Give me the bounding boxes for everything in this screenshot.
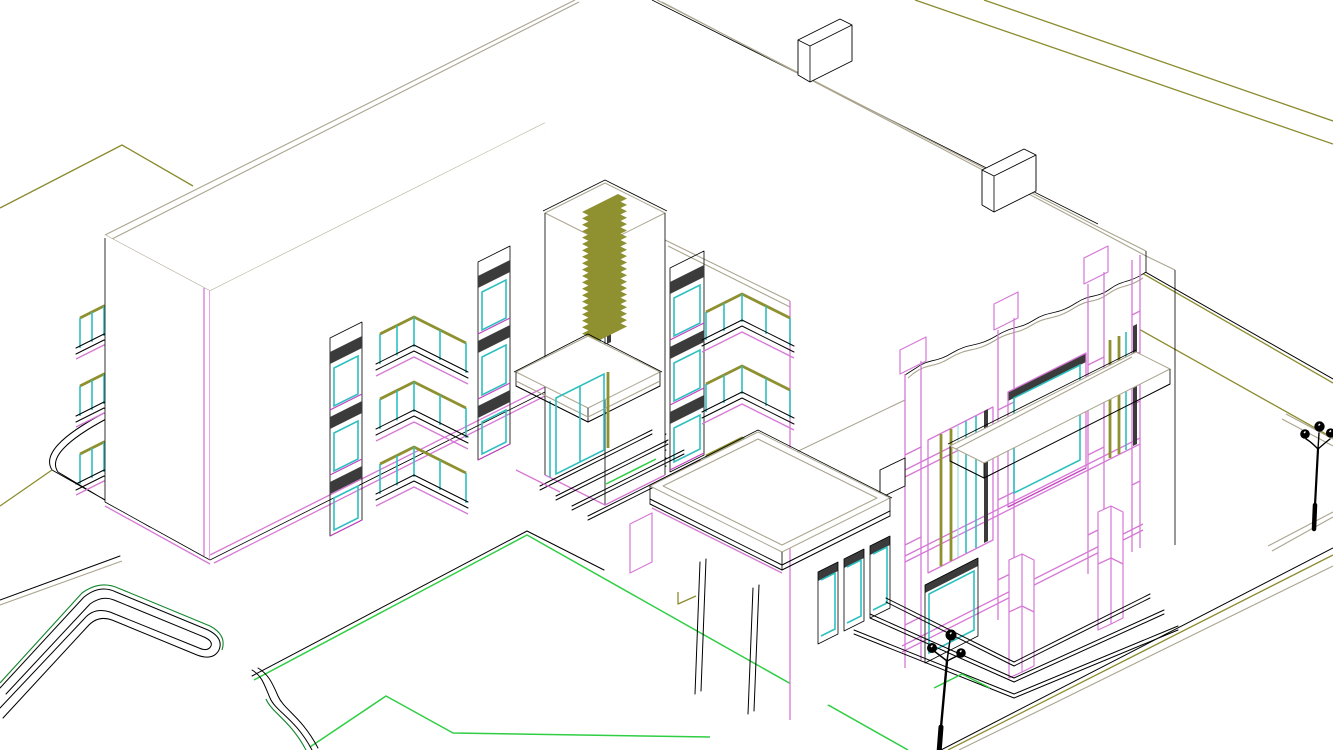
curb-hook-green (0, 585, 223, 683)
porch-return-slab (630, 513, 652, 573)
lamp-base (939, 727, 941, 750)
curb-s-curve (252, 668, 318, 750)
curb-sw-olive (0, 470, 52, 506)
lamp-head-1 (1300, 429, 1310, 439)
parapet-notch-1 (798, 19, 852, 82)
road-top-left (0, 145, 193, 208)
porch-column-1 (695, 559, 706, 694)
lamp-head-2 (946, 630, 957, 641)
column-b (1098, 506, 1123, 630)
cad-viewport (0, 0, 1333, 750)
lamp-head-1 (927, 643, 937, 653)
porch-column-2 (748, 585, 759, 714)
end-wall (105, 235, 210, 560)
column-a (1009, 554, 1034, 678)
road-top-right-1 (915, 0, 1333, 144)
lamp-head-3 (956, 648, 966, 658)
ground-olive-mark (678, 592, 696, 604)
parapet-ne-corner-ink (1146, 251, 1175, 545)
curb-lamp-lower (1268, 512, 1333, 551)
curb-bottom-left (0, 556, 120, 600)
lamp-pole (941, 661, 947, 727)
lamp-base (1314, 505, 1315, 529)
lamp-pole (1315, 449, 1318, 505)
road-right-black (1126, 261, 1333, 379)
road-top-right-2 (984, 0, 1333, 121)
cad-drawing-canvas (0, 0, 1333, 750)
lawn-edge-black (252, 531, 604, 676)
lawn-bottom-edge (310, 696, 710, 747)
louver-stack (582, 194, 627, 345)
curb-hook-outer (0, 589, 220, 718)
lamp-head-2 (1314, 421, 1324, 431)
